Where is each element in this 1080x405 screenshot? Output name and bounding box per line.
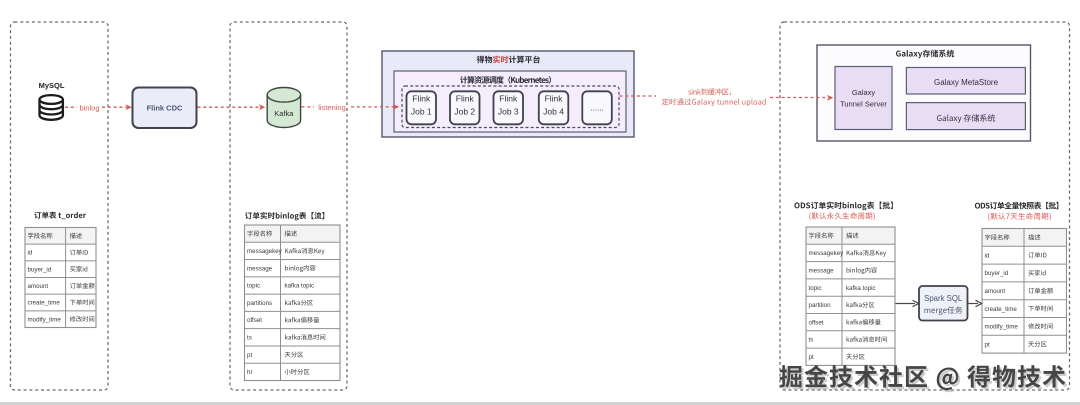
svg-text:offset: offset (247, 317, 262, 324)
svg-text:buyer_id: buyer_id (28, 266, 52, 273)
svg-text:Flink: Flink (456, 94, 475, 104)
svg-text:Spark SQL: Spark SQL (924, 294, 963, 303)
svg-text:id: id (28, 250, 33, 257)
svg-text:pt: pt (247, 352, 252, 359)
svg-text:create_time: create_time (985, 306, 1018, 313)
svg-text:offset: offset (809, 319, 824, 326)
svg-text:message: message (247, 265, 273, 272)
svg-text:modify_time: modify_time (28, 316, 62, 323)
svg-text:message: message (809, 267, 835, 274)
svg-text:create_time: create_time (28, 300, 61, 307)
svg-text:ts: ts (247, 335, 252, 342)
svg-text:modify_time: modify_time (985, 324, 1019, 331)
svg-text:kafka topic: kafka topic (846, 285, 876, 292)
svg-text:amount: amount (985, 288, 1006, 295)
svg-text:listening: listening (318, 103, 346, 112)
svg-text:Kafka: Kafka (274, 109, 294, 118)
svg-text:Job 2: Job 2 (454, 106, 475, 116)
svg-text:Flink: Flink (545, 94, 564, 104)
svg-text:id: id (985, 252, 990, 259)
svg-text:messagekey: messagekey (247, 248, 283, 255)
svg-text:binlog: binlog (79, 103, 99, 112)
svg-text:Flink: Flink (499, 94, 518, 104)
svg-text:Job 1: Job 1 (411, 106, 432, 116)
svg-text:messagekey: messagekey (809, 250, 845, 257)
svg-text:......: ...... (590, 104, 603, 113)
svg-text:Galaxy: Galaxy (852, 88, 876, 97)
svg-text:buyer_id: buyer_id (985, 270, 1009, 277)
svg-text:Job 3: Job 3 (498, 106, 519, 116)
svg-text:Tunnel Server: Tunnel Server (840, 100, 887, 109)
svg-text:hr: hr (247, 369, 253, 376)
svg-text:Flink: Flink (412, 94, 431, 104)
svg-text:Job 4: Job 4 (543, 106, 564, 116)
svg-text:Flink CDC: Flink CDC (147, 104, 183, 113)
svg-text:MySQL: MySQL (39, 81, 65, 90)
svg-text:pt: pt (985, 341, 990, 348)
svg-text:topic: topic (247, 283, 260, 290)
svg-text:partitions: partitions (247, 300, 272, 307)
svg-text:ts: ts (809, 337, 814, 344)
svg-text:kafka topic: kafka topic (285, 283, 315, 290)
svg-text:Galaxy MetaStore: Galaxy MetaStore (934, 78, 999, 87)
svg-text:topic: topic (809, 285, 822, 292)
svg-text:pt: pt (809, 354, 814, 361)
svg-text:amount: amount (28, 283, 49, 290)
svg-text:partition: partition (809, 302, 832, 309)
